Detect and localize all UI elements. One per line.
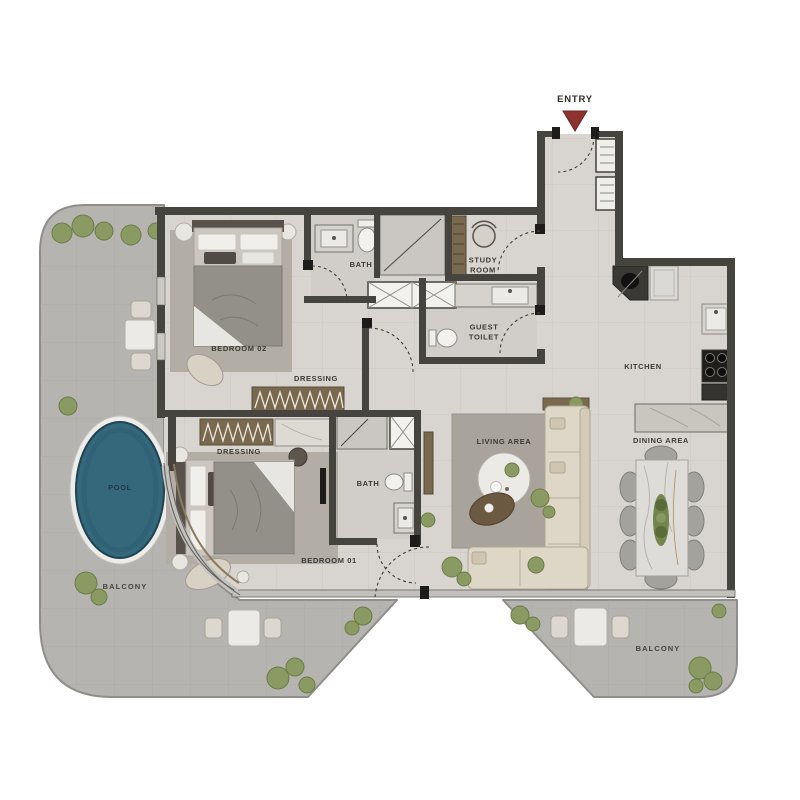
label-balcony-right: BALCONY [636,644,681,654]
label-pool: POOL [108,483,132,493]
label-dressing-bedroom-01: DRESSING [217,447,261,457]
label-bath-main: BATH [350,260,373,270]
label-study-room: STUDY ROOM [457,255,509,275]
label-living-area: LIVING AREA [477,437,532,447]
label-dining-area: DINING AREA [633,436,689,446]
label-dressing-bedroom-02: DRESSING [294,374,338,384]
label-bath-master: BATH [357,479,380,489]
label-bedroom-02: BEDROOM 02 [211,344,267,354]
label-guest-toilet: GUEST TOILET [460,322,508,342]
hall-closet [368,282,456,308]
entry-arrow-icon [563,111,587,131]
label-kitchen: KITCHEN [624,362,662,372]
label-bedroom-01: BEDROOM 01 [301,556,357,566]
floor-plan-drawing [0,0,800,800]
label-balcony-left: BALCONY [103,582,148,592]
floor-plan-page: ENTRY BATH STUDY ROOM GUEST TOILET BEDRO… [0,0,800,800]
label-entry: ENTRY [557,94,593,106]
